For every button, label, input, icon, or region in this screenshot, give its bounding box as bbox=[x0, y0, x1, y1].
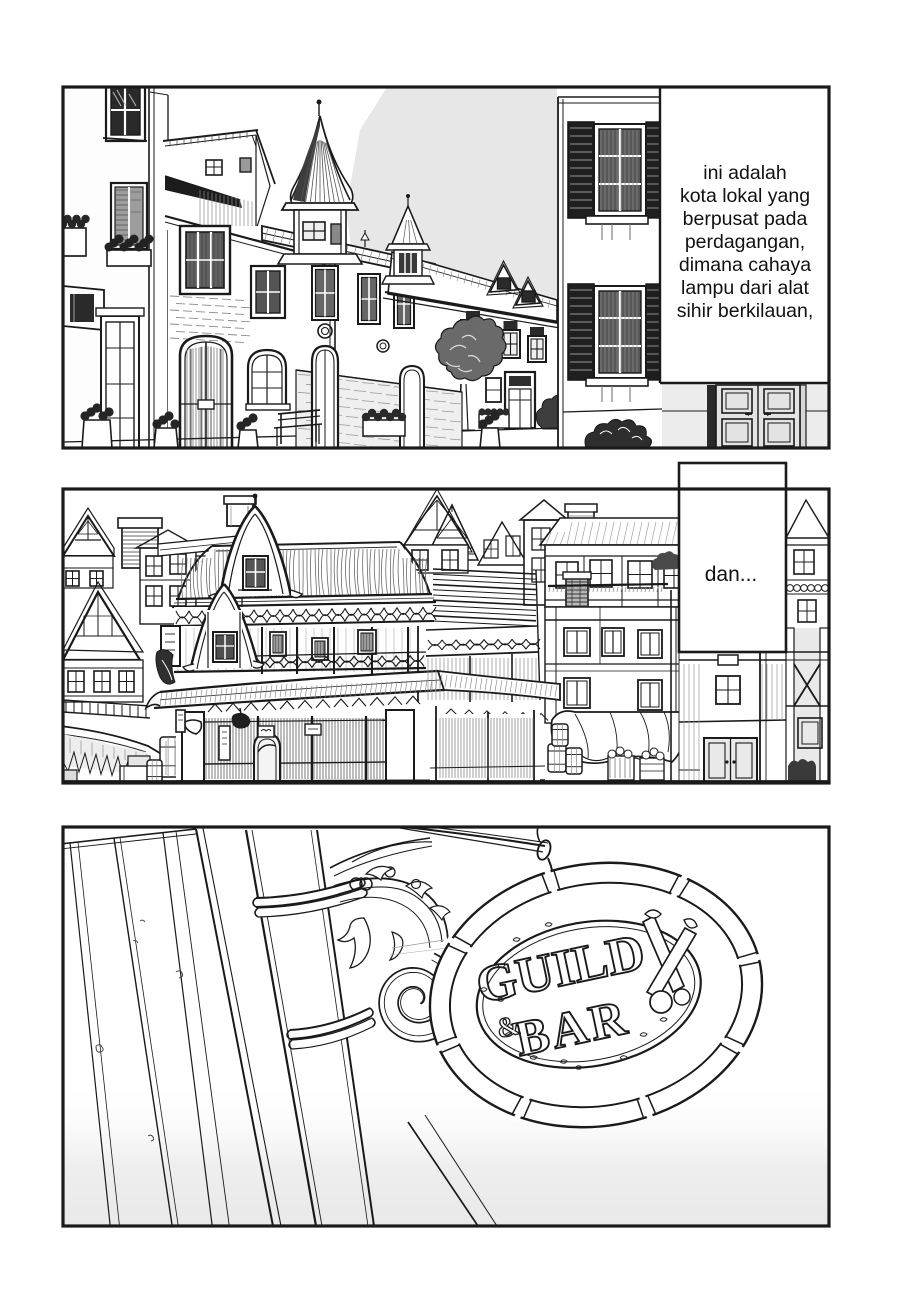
svg-text:berpusat pada: berpusat pada bbox=[683, 208, 808, 230]
svg-text:sihir berkilauan,: sihir berkilauan, bbox=[677, 300, 814, 322]
svg-text:perdagangan,: perdagangan, bbox=[685, 231, 805, 253]
svg-text:dan...: dan... bbox=[705, 563, 758, 586]
svg-text:kota lokal yang: kota lokal yang bbox=[680, 185, 810, 207]
svg-text:ini adalah: ini adalah bbox=[703, 162, 786, 184]
svg-text:dimana cahaya: dimana cahaya bbox=[679, 254, 811, 276]
svg-text:lampu dari alat: lampu dari alat bbox=[681, 277, 809, 299]
